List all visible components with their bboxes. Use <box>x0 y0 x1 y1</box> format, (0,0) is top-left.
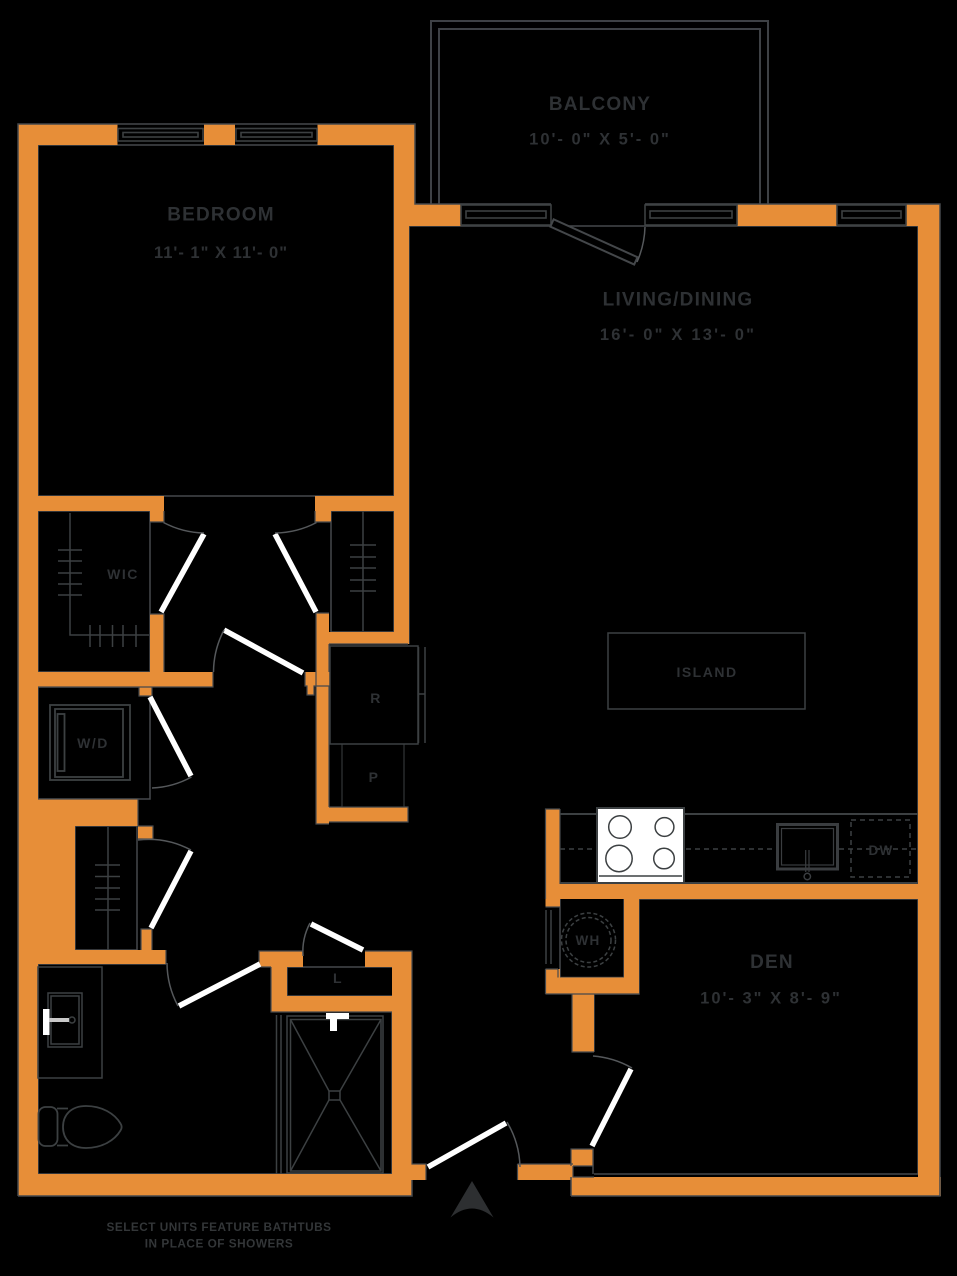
svg-text:DW: DW <box>869 843 894 858</box>
svg-text:L: L <box>333 970 343 986</box>
svg-text:LIVING/DINING: LIVING/DINING <box>603 290 754 311</box>
svg-text:BALCONY: BALCONY <box>549 94 651 115</box>
svg-text:P: P <box>369 769 380 785</box>
svg-text:IN PLACE OF SHOWERS: IN PLACE OF SHOWERS <box>145 1237 293 1251</box>
svg-text:SELECT UNITS FEATURE BATHTUBS: SELECT UNITS FEATURE BATHTUBS <box>106 1220 331 1234</box>
svg-text:BEDROOM: BEDROOM <box>167 205 275 226</box>
svg-text:10'- 3" X 8'- 9": 10'- 3" X 8'- 9" <box>700 990 842 1008</box>
svg-text:WH: WH <box>576 933 601 948</box>
svg-text:WIC: WIC <box>107 566 139 582</box>
svg-text:ISLAND: ISLAND <box>676 664 737 680</box>
svg-text:R: R <box>370 690 382 706</box>
svg-text:11'- 1" X 11'- 0": 11'- 1" X 11'- 0" <box>154 244 288 262</box>
svg-text:16'- 0" X 13'- 0": 16'- 0" X 13'- 0" <box>600 326 756 344</box>
svg-text:W/D: W/D <box>77 735 109 751</box>
svg-text:10'- 0" X 5'- 0": 10'- 0" X 5'- 0" <box>529 131 671 149</box>
svg-text:DEN: DEN <box>750 952 794 973</box>
